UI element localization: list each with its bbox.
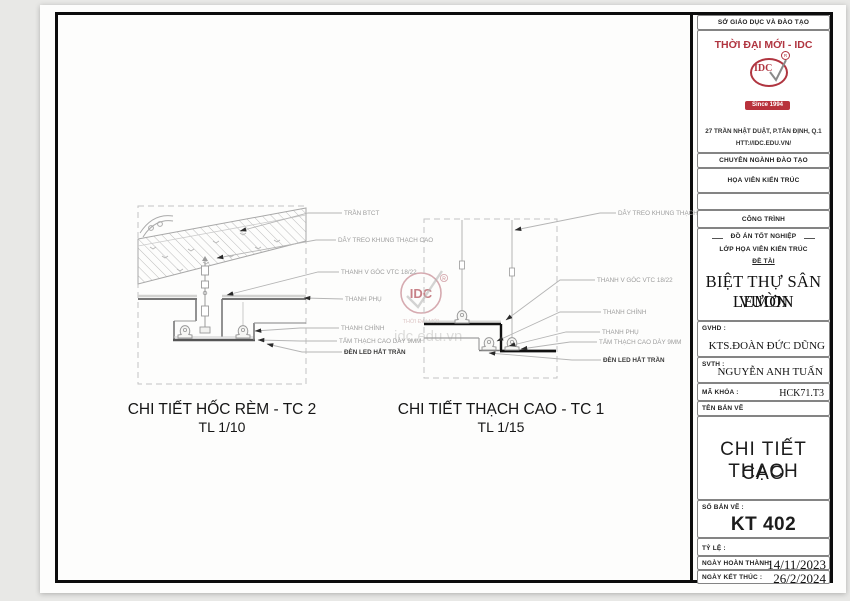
titleblock-scale-box: TỶ LỆ : [697,538,830,556]
detail-tc1-drawing: DÂY TREO KHUNG THẠCH CAO THANH V GÓC VTC… [398,208,713,435]
svth-value: NGUYỄN ANH TUẤN [717,366,823,378]
titleblock-svth-box: SVTH : NGUYỄN ANH TUẤN [697,357,830,383]
since-badge: Since 1994 [745,101,790,110]
drawing-sheet-page: IDC R THỜI ĐẠI MỚI idc.edu.vn [0,0,850,601]
class-name-text: LỚP HỌA VIÊN KIẾN TRÚC [698,246,829,253]
tc2-ceiling-lines [138,296,306,337]
tc2-label-thanh-v-goc: THANH V GÓC VTC 18/22 [341,267,417,276]
titleblock-finishdate-box: NGÀY HOÀN THÀNH: 14/11/2023 [697,556,830,570]
tc1-label-thanh-chinh: THANH CHÍNH [603,307,647,316]
end-date-value: 26/2/2024 [773,571,826,584]
tc2-caption-title: CHI TIẾT HỐC RÈM - TC 2 [128,400,317,418]
idc-watermark: IDC R THỜI ĐẠI MỚI idc.edu.vn [394,271,462,345]
detail-tc2-drawing: TRẦN BTCT DÂY TREO KHUNG THẠCH CAO THANH… [128,206,434,435]
titleblock-code-box: MÃ KHÓA : HCK71.T3 [697,383,830,401]
titleblock-gvhd-box: GVHD : KTS.ĐOÀN ĐỨC DŨNG [697,321,830,357]
titleblock-major-box: HỌA VIÊN KIẾN TRÚC [697,168,830,193]
titleblock-sheetno-box: SỐ BẢN VẼ : KT 402 [697,500,830,538]
gvhd-label: GVHD : [702,325,726,332]
tc1-caption-scale: TL 1/15 [478,419,525,435]
tc1-hanger-rods [460,220,515,344]
tc2-caption-scale: TL 1/10 [199,419,246,435]
company-website: HTT://IDC.EDU.VN/ [698,140,829,147]
watermark-registered-icon: R [442,277,446,283]
project-type-text: ĐỒ ÁN TỐT NGHIỆP [698,233,829,240]
tc1-caption-title: CHI TIẾT THẠCH CAO - TC 1 [398,401,604,418]
tc1-label-thanh-v-goc: THANH V GÓC VTC 18/22 [597,275,673,284]
titleblock-sheetname-header-box: TÊN BẢN VẼ [697,401,830,416]
titleblock-logo-box: THỜI ĐẠI MỚI - IDC IDC R Since 1994 27 T… [697,30,830,153]
department-text: SỞ GIÁO DỤC VÀ ĐÀO TẠO [698,16,829,29]
project-title-line2: LEMON [698,292,829,312]
company-address: 27 TRẦN NHẬT DUẬT, P.TÂN ĐỊNH, Q.1 [698,128,829,135]
tc2-hanger-clip-left [178,326,192,338]
scale-label: TỶ LỆ : [702,545,726,552]
major-header-text: CHUYÊN NGÀNH ĐÀO TẠO [698,154,829,167]
company-name: THỜI ĐẠI MỚI - IDC [698,39,829,51]
tc1-boundary-dashed [424,219,557,378]
finish-date-value: 14/11/2023 [767,557,826,570]
sheet-name-label: TÊN BẢN VẼ [702,405,743,412]
sheet-no-value: KT 402 [698,514,829,536]
titleblock-enddate-box: NGÀY KẾT THÚC : 26/2/2024 [697,570,830,584]
registered-trademark-icon: R [781,51,790,60]
gvhd-value: KTS.ĐOÀN ĐỨC DŨNG [709,340,825,352]
tc1-leader-lines [489,213,616,360]
tc1-label-den-led: ĐÈN LED HẮT TRẦN [603,354,665,364]
titleblock-project-box: ĐỒ ÁN TỐT NGHIỆP LỚP HỌA VIÊN KIẾN TRÚC … [697,228,830,321]
tc2-label-day-treo: DÂY TREO KHUNG THẠCH CAO [338,235,433,244]
finish-date-label: NGÀY HOÀN THÀNH: [702,560,772,567]
sheet-no-label: SỐ BẢN VẼ : [702,504,744,511]
major-text: HỌA VIÊN KIẾN TRÚC [698,169,829,192]
titleblock-sheetname-box: CHI TIẾT THẠCH CAO [697,416,830,500]
tc1-label-thanh-phu: THANH PHỤ [602,329,639,336]
idc-logo: IDC R [748,54,788,86]
project-header-text: CÔNG TRÌNH [698,211,829,227]
tc1-hanger-clip-middle [482,338,496,350]
titleblock-department-box: SỞ GIÁO DỤC VÀ ĐÀO TẠO [697,15,830,30]
end-date-label: NGÀY KẾT THÚC : [702,574,762,581]
topic-label-text: ĐỀ TÀI [698,258,829,265]
titleblock-spacer-box [697,193,830,210]
tc2-label-tran-btct: TRẦN BTCT [344,207,379,217]
code-label: MÃ KHÓA : [702,389,739,396]
titleblock-project-header-box: CÔNG TRÌNH [697,210,830,228]
titleblock-major-header-box: CHUYÊN NGÀNH ĐÀO TẠO [697,153,830,168]
tc2-hanger-clip-right [236,326,250,338]
tc1-label-tam-thach-cao: TẤM THẠCH CAO DÀY 9MM [599,336,681,346]
tc2-label-thanh-chinh: THANH CHÍNH [341,323,385,332]
tc1-hanger-clip-upper [455,311,469,323]
sheet-name-line2: CAO [698,463,829,485]
tc2-hanger-rod [200,256,210,333]
tc2-label-den-led: ĐÈN LED HẮT TRẦN [344,346,406,356]
code-value: HCK71.T3 [779,388,824,399]
tc2-label-thanh-phu: THANH PHỤ [345,296,382,303]
